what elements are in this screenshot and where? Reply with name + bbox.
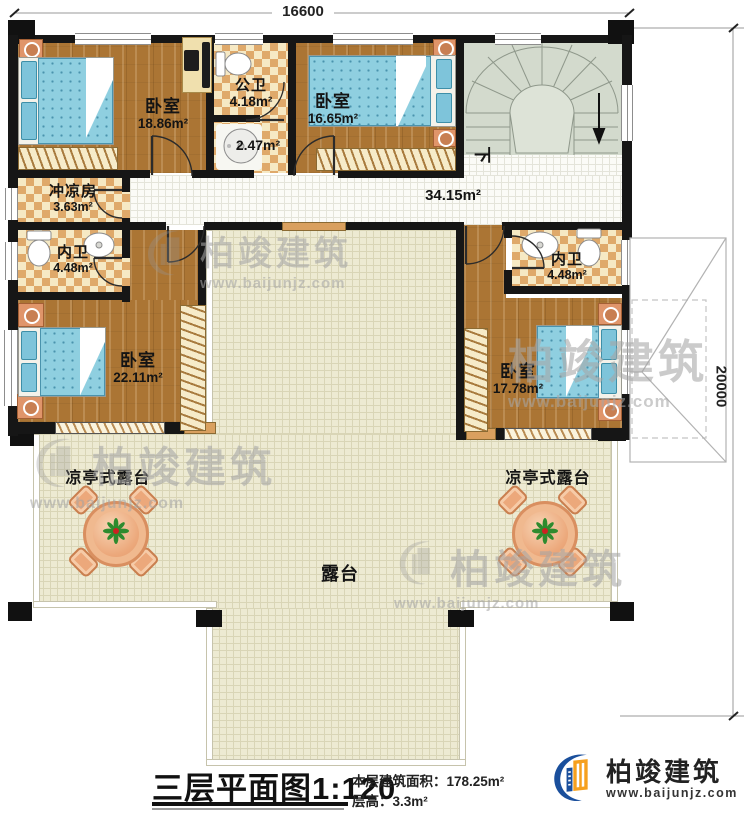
terrace-pillar bbox=[8, 602, 32, 621]
window bbox=[75, 33, 151, 45]
pillow bbox=[21, 102, 37, 140]
wall bbox=[502, 222, 628, 230]
wall bbox=[122, 218, 130, 258]
watermark: 柏竣建筑 www.baijunjz.com bbox=[508, 326, 708, 412]
terrace-protrusion bbox=[212, 608, 464, 762]
room-label-terrace: 露台 bbox=[300, 565, 380, 585]
wall bbox=[8, 292, 130, 300]
window bbox=[504, 428, 592, 440]
wardrobe bbox=[180, 305, 206, 431]
wall bbox=[496, 428, 504, 440]
nightstand bbox=[19, 39, 43, 58]
parapet bbox=[206, 608, 213, 764]
nightstand bbox=[18, 303, 44, 327]
dimension-right: 20000 bbox=[713, 356, 730, 418]
wall bbox=[346, 222, 464, 230]
company-website: www.baijunjz.com bbox=[606, 786, 738, 800]
company-logo-icon bbox=[548, 748, 602, 804]
wardrobe bbox=[316, 148, 456, 171]
pillow bbox=[436, 59, 452, 89]
bed-sheet bbox=[396, 56, 426, 126]
room-label-ensuite-right: 内卫 4.48m² bbox=[524, 252, 610, 282]
staircase bbox=[462, 43, 622, 155]
room-label-bedroom-left: 卧室 22.11m² bbox=[93, 352, 183, 386]
room-label-bedroom-top-left: 卧室 18.86m² bbox=[118, 98, 208, 132]
watermark: 柏竣建筑 www.baijunjz.com bbox=[394, 537, 570, 612]
nightstand bbox=[17, 394, 43, 419]
parapet bbox=[33, 601, 217, 608]
watermark: 柏竣建筑 www.baijunjz.com bbox=[30, 434, 214, 513]
room-label-ensuite-left: 内卫 4.48m² bbox=[30, 245, 116, 275]
watermark-logo-icon bbox=[30, 434, 86, 490]
room-label-hallway: 34.15m² bbox=[408, 188, 498, 205]
nightstand bbox=[433, 129, 456, 147]
wall bbox=[338, 170, 458, 178]
wall bbox=[504, 286, 630, 294]
wall bbox=[122, 178, 130, 192]
wall bbox=[8, 422, 55, 434]
terrace-pillar bbox=[448, 610, 474, 627]
watermark-logo-icon bbox=[142, 226, 194, 278]
window bbox=[4, 330, 18, 406]
pillow bbox=[21, 363, 37, 392]
wall bbox=[214, 115, 260, 122]
window bbox=[5, 188, 18, 220]
hallway-floor bbox=[130, 175, 628, 225]
parapet bbox=[459, 608, 466, 764]
wall bbox=[504, 225, 512, 238]
wall bbox=[456, 35, 464, 178]
room-label-washroom: 2.47m² bbox=[228, 138, 288, 153]
pillow bbox=[436, 93, 452, 123]
title-block-info: 本层建筑面积：178.25m² 层高：3.3m² bbox=[352, 772, 504, 811]
room-label-pavilion-terrace-right: 凉亭式露台 bbox=[490, 470, 606, 488]
floor-plan: 16600 20000 卧室 18.86m² 公卫 4.18m² 2.47m² … bbox=[0, 0, 750, 819]
floor-height-line: 层高：3.3m² bbox=[352, 792, 504, 812]
plant-icon bbox=[103, 518, 129, 544]
window bbox=[495, 33, 541, 45]
title-underline bbox=[152, 802, 348, 806]
terrace-pillar bbox=[196, 610, 222, 627]
watermark-logo-icon bbox=[394, 537, 444, 587]
wall bbox=[192, 170, 254, 178]
window bbox=[5, 242, 18, 280]
wall bbox=[8, 170, 150, 178]
nightstand bbox=[433, 39, 456, 56]
floor-area-line: 本层建筑面积：178.25m² bbox=[352, 772, 504, 792]
pillow bbox=[21, 331, 37, 360]
pillow bbox=[21, 61, 37, 99]
room-label-shower-room: 冲凉房 3.63m² bbox=[28, 184, 118, 214]
window bbox=[621, 85, 633, 141]
window bbox=[215, 33, 263, 45]
toilet-icon bbox=[215, 49, 253, 79]
window bbox=[333, 33, 413, 45]
wall bbox=[456, 222, 464, 428]
room-label-bedroom-top-middle: 卧室 16.65m² bbox=[288, 93, 378, 127]
window bbox=[621, 240, 633, 285]
nightstand bbox=[598, 303, 622, 325]
terrace-pillar bbox=[610, 602, 634, 621]
wardrobe bbox=[18, 147, 118, 170]
wall bbox=[592, 428, 632, 440]
room-label-public-bathroom: 公卫 4.18m² bbox=[206, 78, 296, 109]
desk-chair bbox=[184, 50, 199, 71]
title-underline bbox=[152, 808, 344, 810]
stair-down-label: 下 bbox=[472, 142, 491, 168]
bed-sheet bbox=[86, 58, 113, 144]
watermark: 柏竣建筑 www.baijunjz.com bbox=[142, 226, 294, 292]
window bbox=[55, 422, 165, 434]
bedroom-right-floor bbox=[464, 225, 506, 300]
dimension-top: 16600 bbox=[272, 3, 334, 20]
company-name: 柏竣建筑 bbox=[606, 752, 722, 789]
